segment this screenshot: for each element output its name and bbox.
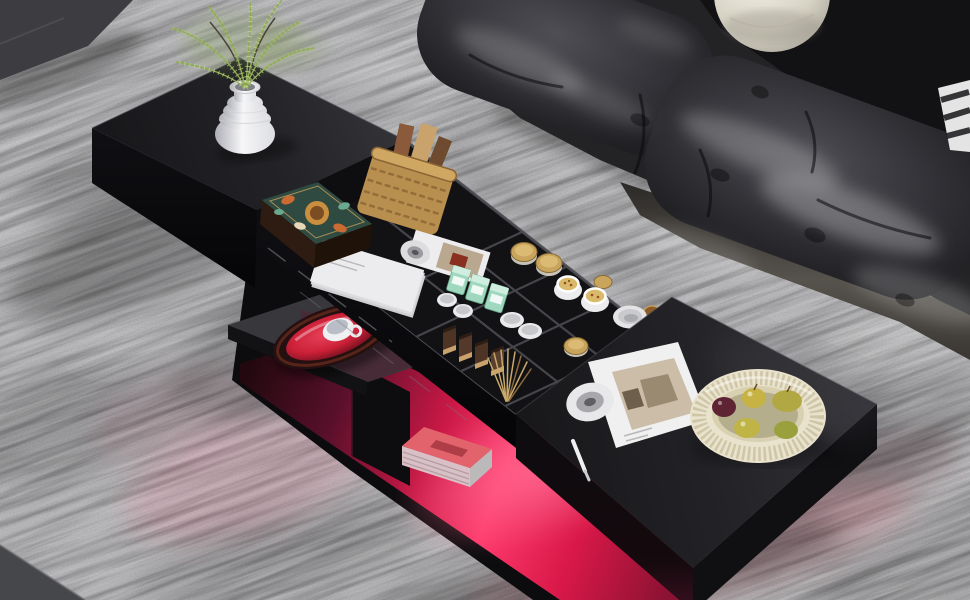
pear xyxy=(772,390,802,412)
bamboo-jar xyxy=(564,338,588,358)
jar-lid-top xyxy=(540,256,558,268)
jar-deco-lid xyxy=(558,277,579,292)
lid-dot xyxy=(570,284,573,287)
bowl-bottom xyxy=(624,314,638,322)
tea-box-medallion-center xyxy=(310,206,324,220)
white-cup-item xyxy=(437,293,457,307)
fruit-highlight xyxy=(718,401,722,405)
cup-inner xyxy=(522,325,539,335)
lid-dot xyxy=(568,280,570,282)
choc-bar xyxy=(459,332,472,362)
cookie-jar xyxy=(554,277,582,301)
product-photo-coffee-table: Modern black extendable sliding-top coff… xyxy=(0,0,970,600)
cup-inner xyxy=(456,306,470,315)
bamboo-jar xyxy=(511,243,537,266)
white-cup-item xyxy=(518,323,542,339)
bamboo-jar xyxy=(594,276,612,289)
lid-dot xyxy=(591,294,594,297)
bamboo-jar xyxy=(536,254,562,277)
jar-lid-top xyxy=(568,340,584,350)
jar-deco-lid xyxy=(585,289,606,304)
white-cup-item xyxy=(500,312,524,328)
floral xyxy=(274,209,284,215)
jar-lid-top xyxy=(515,245,533,257)
pear xyxy=(742,388,766,408)
jar-lid xyxy=(594,276,612,289)
white-cup-item xyxy=(453,304,473,318)
fruit-highlight xyxy=(748,392,753,397)
choc-bar xyxy=(443,325,456,355)
pear xyxy=(734,418,760,438)
fruit-highlight xyxy=(741,422,746,427)
plum xyxy=(712,397,736,417)
cup-inner xyxy=(504,314,521,324)
cookie-jar xyxy=(581,289,609,313)
olive-pear xyxy=(774,421,798,439)
lid-dot xyxy=(564,282,567,285)
lid-dot xyxy=(597,296,600,299)
scene-canvas: Modern black extendable sliding-top coff… xyxy=(0,0,970,600)
cup-inner xyxy=(440,295,454,304)
choc-bar xyxy=(475,339,488,369)
